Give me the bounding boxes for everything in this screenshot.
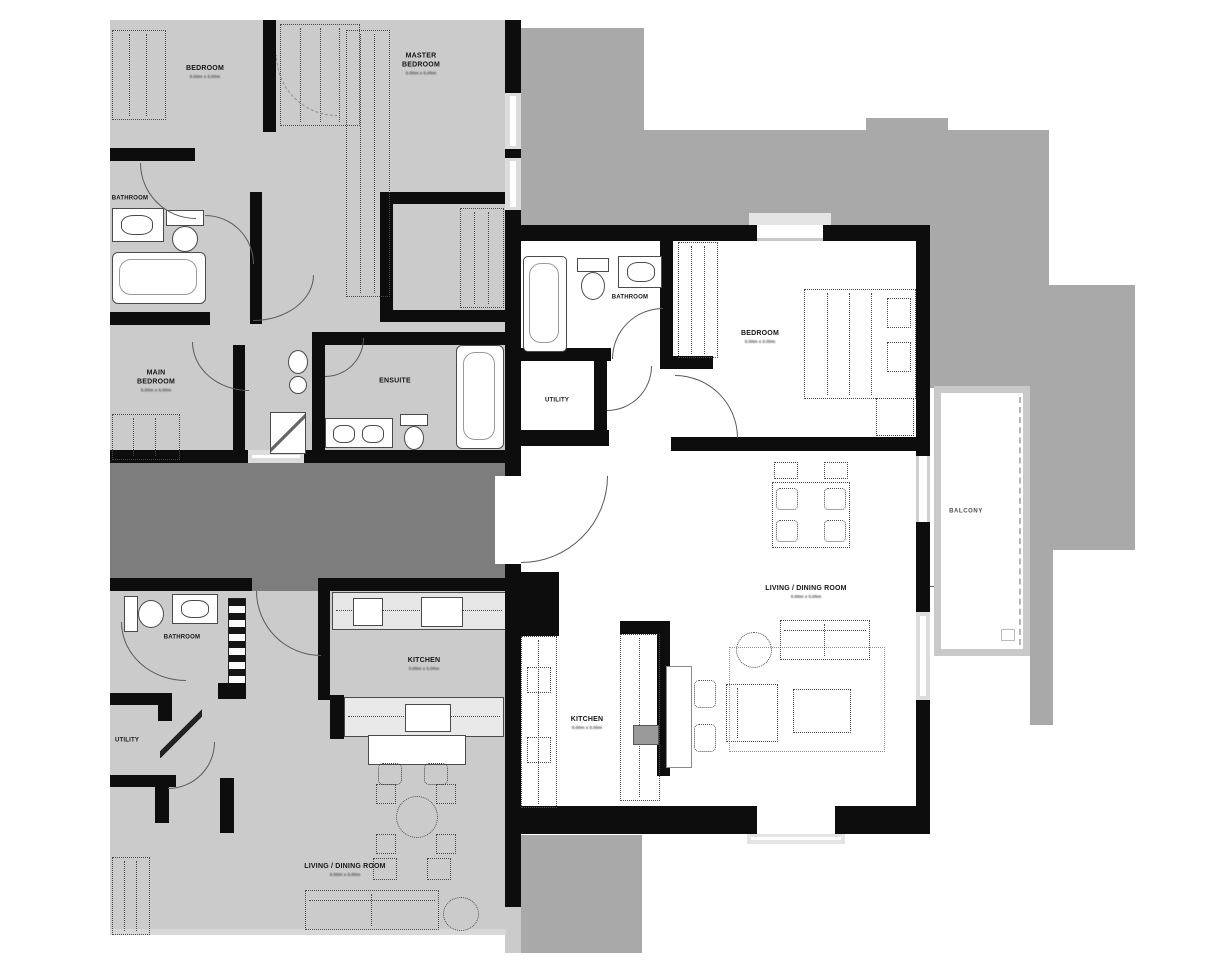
sink <box>172 594 218 624</box>
wall-segment <box>380 310 505 322</box>
sink-vanity <box>112 208 164 242</box>
wardrobe <box>112 857 150 935</box>
dining-table <box>368 735 466 765</box>
entry-door-opening <box>495 476 521 564</box>
toilet <box>138 600 164 628</box>
wall-segment <box>155 775 169 823</box>
shower <box>270 412 306 454</box>
dining-chair <box>378 763 402 785</box>
room-label-ensuite: ENSUITE <box>379 378 411 387</box>
corridor-door-opening <box>252 578 318 591</box>
sink <box>289 376 307 394</box>
bathtub <box>523 256 567 352</box>
wall-segment <box>330 695 344 739</box>
room-label-bathroom-ll: BATHROOM <box>164 634 200 642</box>
kitchen-counter <box>332 592 506 630</box>
building-mass <box>505 907 521 953</box>
kitchen-appliance <box>633 725 659 745</box>
window-sill <box>747 834 845 844</box>
side-table <box>427 858 451 880</box>
wall-segment <box>263 20 276 132</box>
wall-segment <box>312 332 325 450</box>
room-label-bedroom-fu: BEDROOM0.00m x 0.00m <box>741 330 779 344</box>
kitchen-counter <box>521 636 557 808</box>
wall-segment <box>380 192 505 204</box>
bathtub <box>112 252 206 304</box>
sink <box>618 256 662 288</box>
wall-segment <box>110 148 195 161</box>
toilet <box>581 272 605 300</box>
kitchen-island <box>344 697 504 737</box>
side-table <box>824 462 848 479</box>
dining-chair <box>436 784 456 804</box>
dining-chair <box>424 763 448 785</box>
side-table <box>774 462 798 479</box>
toilet <box>577 258 609 272</box>
corridor-floor <box>110 463 506 578</box>
wall-segment <box>218 683 246 699</box>
dining-chair <box>436 834 456 854</box>
room-label-living-dining-ll: LIVING / DINING ROOM0.00m x 0.00m <box>304 863 385 877</box>
room-label-balcony: BALCONY <box>949 508 983 516</box>
armchair <box>443 897 479 931</box>
toilet <box>288 350 308 374</box>
room-label-bathroom-ul: BATHROOM <box>112 195 148 203</box>
wall-segment <box>220 778 234 833</box>
dining-chair <box>824 488 846 510</box>
dining-chair <box>694 680 716 708</box>
wall-segment <box>521 225 930 241</box>
building-mass <box>521 835 642 953</box>
wall-segment <box>505 20 521 907</box>
wall-segment <box>521 430 609 446</box>
sink-vanity <box>325 418 393 448</box>
door-frame <box>927 456 930 522</box>
dining-chair <box>824 520 846 542</box>
floor-plan: BEDROOM0.00m x 0.00m MASTER BEDROOM0.00m… <box>0 0 1211 974</box>
dining-chair <box>776 488 798 510</box>
room-label-main-bedroom: MAIN BEDROOM0.00m x 0.00m <box>130 369 182 392</box>
building-mass <box>521 130 930 228</box>
room-label-utility-ll: UTILITY <box>115 737 139 745</box>
wardrobe <box>346 30 390 297</box>
meter-cupboard <box>228 598 246 694</box>
dining-chair <box>694 724 716 752</box>
dining-chair <box>376 784 396 804</box>
sofa <box>305 890 439 930</box>
wall-segment <box>916 225 930 822</box>
toilet <box>124 596 138 632</box>
wall-segment <box>521 806 930 834</box>
bathtub <box>456 345 504 449</box>
wardrobe <box>678 242 718 358</box>
balcony-railing <box>1019 397 1021 645</box>
room-label-kitchen-fu: KITCHEN0.00m x 0.00m <box>571 716 604 730</box>
room-label-kitchen-ll: KITCHEN0.00m x 0.00m <box>408 657 441 671</box>
building-mass <box>1030 386 1053 725</box>
window <box>757 806 835 834</box>
desk <box>876 398 914 436</box>
balcony-drain <box>1001 629 1015 641</box>
wardrobe <box>112 30 166 120</box>
toilet <box>404 426 424 450</box>
toilet <box>400 414 428 426</box>
window <box>505 93 521 149</box>
kitchen-island <box>666 666 692 768</box>
room-label-bedroom-ul: BEDROOM0.00m x 0.00m <box>186 65 224 79</box>
window-frame <box>757 238 823 241</box>
dining-chair <box>376 834 396 854</box>
window <box>505 158 521 210</box>
coffee-table <box>793 689 851 733</box>
toilet <box>172 226 198 252</box>
window <box>757 225 823 239</box>
building-mass <box>1049 285 1135 550</box>
room-label-bathroom-fu: BATHROOM <box>612 294 648 302</box>
room-label-utility-fu: UTILITY <box>545 397 569 405</box>
closet <box>460 208 504 308</box>
bed <box>112 414 180 460</box>
dining-chair <box>776 520 798 542</box>
window-sill <box>749 213 831 225</box>
wall-segment <box>110 312 210 325</box>
door-frame <box>916 456 919 522</box>
round-table <box>396 796 438 838</box>
bed <box>804 289 916 399</box>
wall-segment <box>521 572 559 636</box>
room-label-living-dining-fu: LIVING / DINING ROOM0.00m x 0.00m <box>765 585 846 599</box>
window <box>916 612 930 700</box>
kitchen-counter <box>620 634 660 801</box>
room-label-master-bedroom: MASTER BEDROOM0.00m x 0.00m <box>395 52 447 75</box>
armchair <box>726 684 778 742</box>
wall-segment <box>671 437 916 451</box>
sofa <box>780 620 870 660</box>
building-mass <box>930 130 1049 388</box>
balcony <box>934 386 1030 656</box>
